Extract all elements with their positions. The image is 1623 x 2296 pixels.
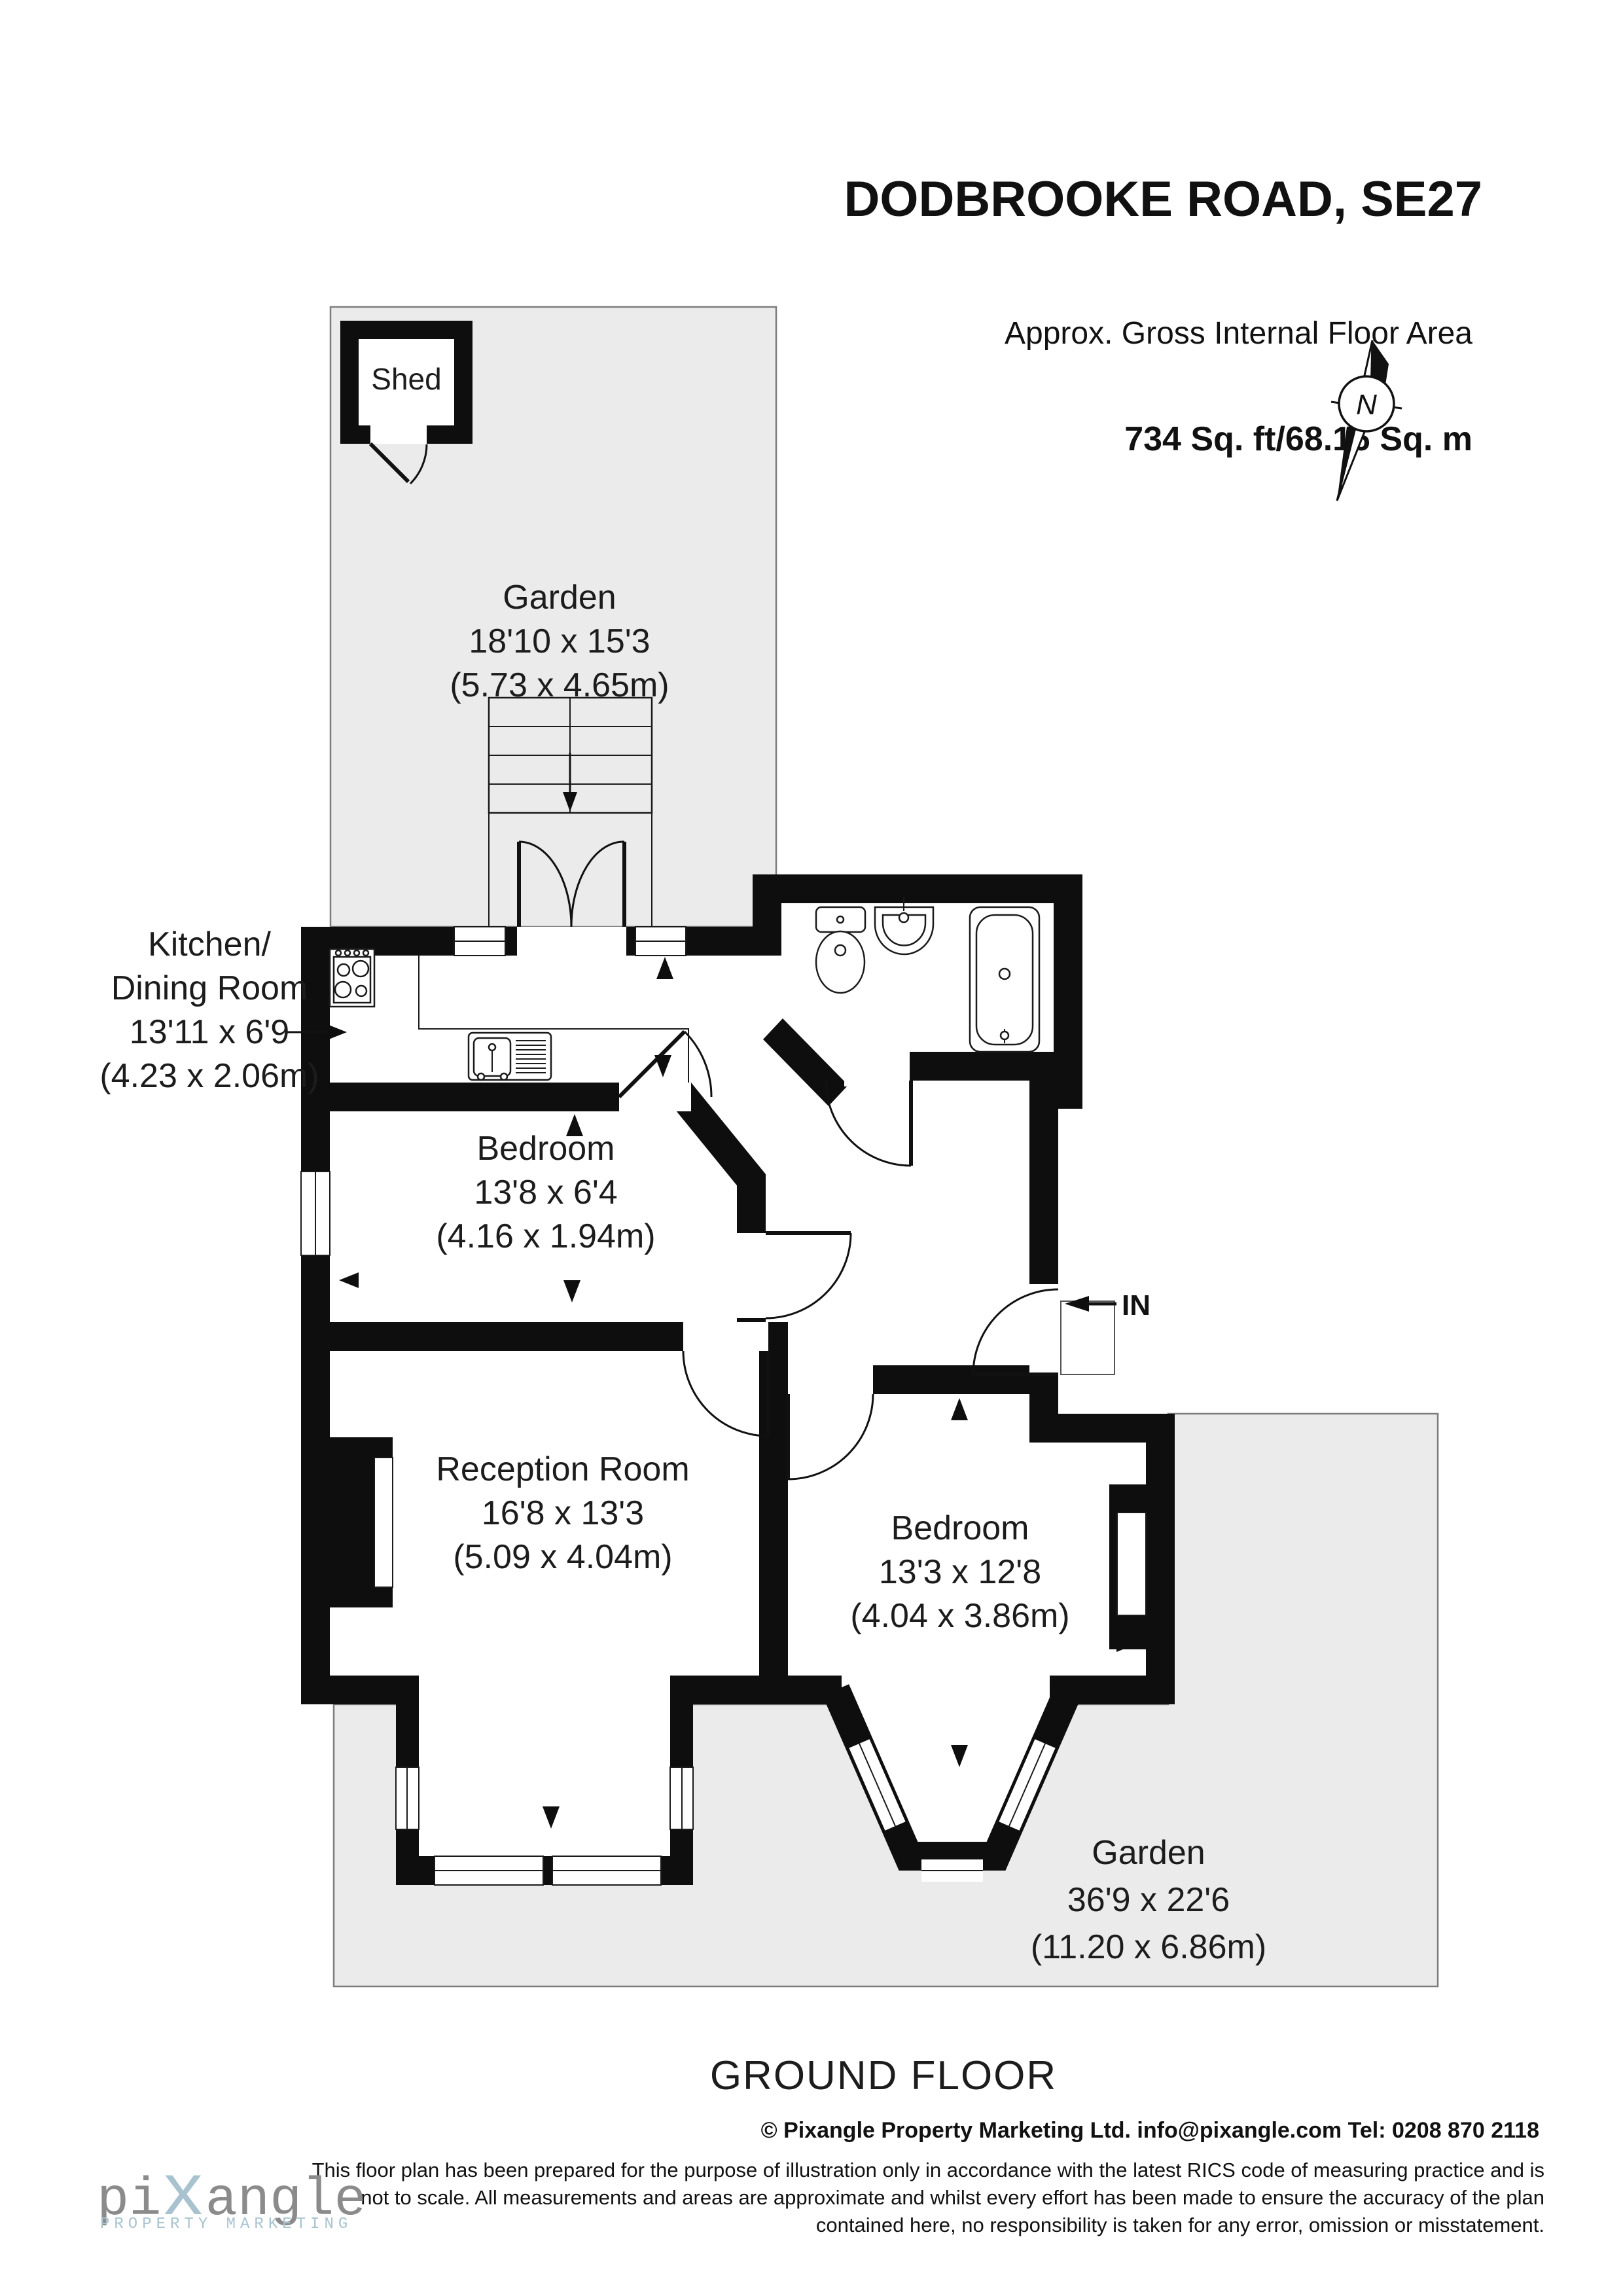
wall-kitchen-bottom [301,1083,619,1111]
kitchen-label: Kitchen/ Dining Room 13'11 x 6'9 (4.23 x… [99,925,319,1095]
wall-between-bays [670,1676,842,1704]
shed-label: Shed [371,362,441,396]
bedroom2-door-gap [788,1365,873,1394]
garden-top-name: Garden [503,579,616,617]
reception-metric: (5.09 x 4.04m) [453,1538,672,1576]
disclaimer-line1: This floor plan has been prepared for th… [312,2159,1544,2181]
wall-right-horizontal [1029,1414,1175,1443]
bedroom1-door-gap [737,1233,766,1318]
bathroom-door-gap [844,1047,910,1086]
window-bay1-bottom-left [435,1856,543,1885]
page-subtitle: Approx. Gross Internal Floor Area [1005,316,1472,351]
garden-bottom-imperial: 36'9 x 22'6 [1067,1881,1230,1919]
kitchen-name-line1: Kitchen/ [148,925,271,963]
footer-contact: © Pixangle Property Marketing Ltd. info@… [761,2118,1539,2143]
wall-bedroom2-left [759,1394,788,1704]
bedroom2-imperial: 13'3 x 12'8 [879,1553,1041,1591]
kitchen-imperial: 13'11 x 6'9 [130,1013,289,1051]
chimney-reception-recess [374,1458,393,1587]
kitchen-name-line2: Dining Room [111,969,308,1007]
garden-top-imperial: 18'10 x 15'3 [469,622,650,660]
window-kitchen-left-of-door [454,927,505,956]
french-door-gap [517,927,626,956]
compass-north-label: N [1356,389,1377,421]
toilet-icon [816,907,865,993]
reception-imperial: 16'8 x 13'3 [482,1494,644,1532]
window-bay1-side-left [396,1767,419,1829]
window-bedroom1-left [301,1172,330,1255]
garden-bottom-name: Garden [1092,1834,1205,1872]
page-title: DODBROOKE ROAD, SE27 [844,171,1483,227]
floor-plan-canvas: DODBROOKE ROAD, SE27 Approx. Gross Inter… [0,0,1623,2296]
entrance-step [1061,1301,1115,1374]
kitchen-sink-icon [469,1033,551,1080]
floor-area-value: 734 Sq. ft/68.16 Sq. m [1124,420,1472,458]
bedroom2-metric: (4.04 x 3.86m) [850,1597,1069,1635]
ground-floor-label: GROUND FLOOR [710,2053,1057,2098]
entrance-door-gap [1029,1284,1058,1374]
chimney-bedroom2-recess [1117,1513,1146,1615]
disclaimer-line2: not to scale. All measurements and areas… [361,2186,1544,2209]
bedroom1-name: Bedroom [477,1130,615,1168]
garden-top-metric: (5.73 x 4.65m) [450,666,669,704]
shed-door-gap [370,425,427,444]
hob-icon [330,949,374,1007]
logo-tagline: PROPERTY MARKETING [100,2215,352,2233]
wall-bedroom2-right [1146,1443,1175,1704]
wall-left [301,927,330,1704]
in-label: IN [1122,1289,1150,1321]
bedroom2-name: Bedroom [891,1509,1029,1547]
bedroom1-metric: (4.16 x 1.94m) [436,1217,655,1255]
bedroom1-imperial: 13'8 x 6'4 [474,1174,617,1211]
reception-door-gap [683,1322,768,1351]
footer: © Pixangle Property Marketing Ltd. info@… [312,2118,1544,2236]
wall-bathroom-bottom [907,1052,1068,1081]
bathtub-icon [970,907,1039,1052]
disclaimer-line3: contained here, no responsibility is tak… [816,2214,1544,2236]
window-kitchen-right-of-door [635,927,686,956]
window-bay1-bottom-right [552,1856,661,1885]
garden-bottom-metric: (11.20 x 6.86m) [1031,1928,1266,1966]
reception-name: Reception Room [436,1450,689,1488]
wall-reception-bottom-left [301,1676,419,1704]
wall-top-right [753,874,1082,903]
wall-jog-below-bathroom [1029,1080,1082,1109]
window-bay1-side-right [670,1767,693,1829]
kitchen-metric: (4.23 x 2.06m) [99,1057,319,1095]
